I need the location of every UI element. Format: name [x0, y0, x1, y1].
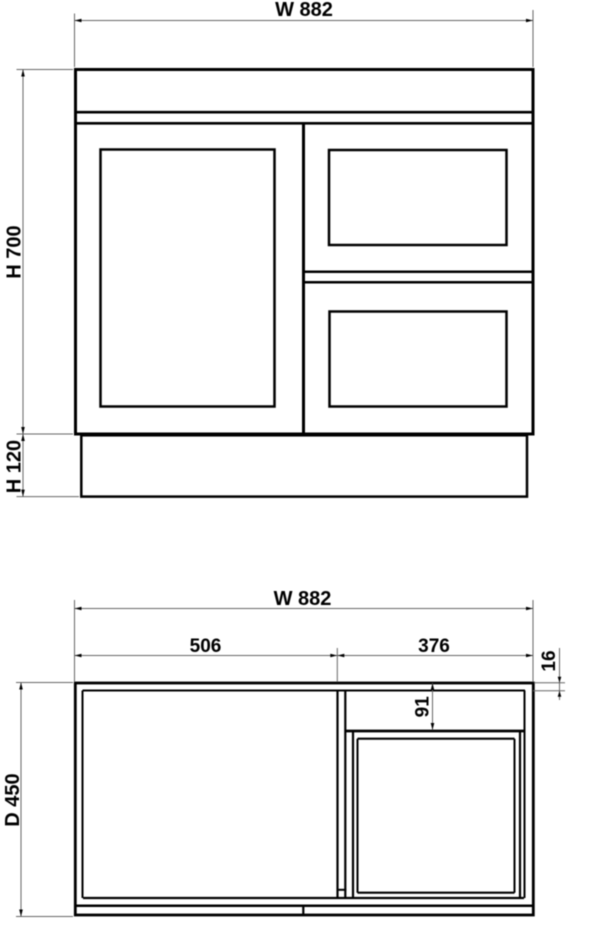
- svg-text:16: 16: [539, 650, 560, 671]
- svg-text:W 882: W 882: [274, 588, 332, 610]
- svg-text:376: 376: [418, 636, 450, 657]
- svg-text:91: 91: [413, 696, 434, 718]
- svg-text:D 450: D 450: [2, 773, 24, 826]
- svg-text:W 882: W 882: [275, 0, 333, 21]
- svg-text:H 120: H 120: [4, 440, 26, 493]
- svg-text:H 700: H 700: [4, 225, 26, 278]
- svg-text:506: 506: [190, 636, 222, 657]
